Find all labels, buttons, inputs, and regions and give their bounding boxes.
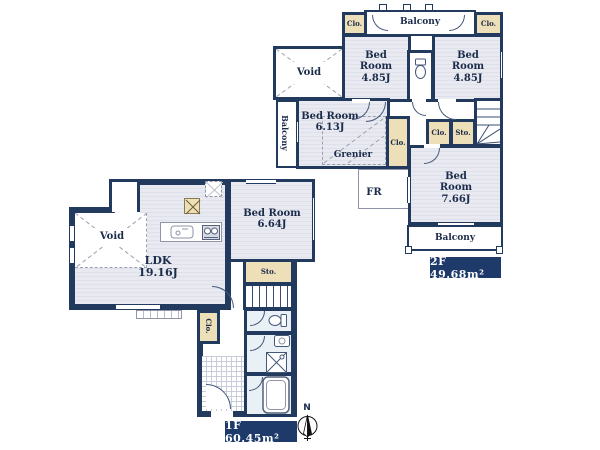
storage-label: Sto. — [450, 119, 476, 147]
floor2-area-label: 2F 49.68m² — [430, 257, 501, 278]
vanity-sink-icon — [274, 335, 290, 347]
door-gap — [296, 122, 299, 142]
stove-symbol-icon — [184, 198, 200, 214]
balcony-bottom-label: Balcony — [407, 228, 503, 248]
ldk-entry-nook — [109, 179, 140, 212]
closet-label: Clo. — [426, 119, 452, 147]
bedroom-1f-label: Bed Room6.64J — [243, 196, 301, 242]
bathtub-icon — [262, 376, 290, 414]
door-gap — [407, 177, 411, 203]
bedroom-2f-w-label: Bed Room6.13J — [300, 102, 360, 142]
void-2f-label: Void — [283, 62, 335, 84]
ldk-label: LDK19.16J — [126, 252, 190, 282]
refrigerator-space-icon — [205, 181, 222, 197]
deck-step — [136, 310, 182, 319]
window — [312, 198, 315, 240]
bedroom-2f-ne-label: Bed Room4.85J — [440, 44, 496, 90]
closet-label: Clo. — [386, 116, 410, 169]
stairs-1f — [243, 283, 294, 310]
door-arc — [438, 102, 456, 120]
closet-label: Clo. — [342, 12, 367, 36]
door-arc — [412, 102, 426, 116]
grenier-label: Grenier — [322, 148, 384, 162]
balcony-rail-post — [496, 246, 503, 254]
floor1-area-label: 1F 60.45m² — [225, 421, 297, 442]
window — [246, 179, 276, 184]
washer-icon — [266, 352, 287, 373]
entrance-door-gap — [210, 411, 234, 417]
toilet-icon — [413, 58, 428, 80]
closet-label: Clo. — [202, 308, 214, 344]
compass-north-label: N — [298, 402, 316, 414]
closet-label: Clo. — [474, 12, 503, 36]
kitchen-sink-icon — [170, 225, 194, 239]
bedroom-2f-se-label: Bed Room7.66J — [428, 165, 484, 211]
stairs-2f-treads — [477, 101, 500, 144]
storage-label: Sto. — [243, 259, 294, 285]
fr-label: FR — [360, 185, 388, 201]
bedroom-2f-nw-label: Bed Room4.85J — [348, 44, 404, 90]
window — [500, 52, 503, 78]
balcony-rail-post — [405, 246, 412, 254]
floor-plan-canvas: Balcony Clo. Clo. Bed Room4.85J Bed Room… — [0, 0, 600, 450]
toilet-icon — [268, 312, 288, 329]
balcony-left-label: Balcony — [276, 102, 294, 164]
cooktop-icon — [202, 225, 220, 240]
void-1f-label: Void — [90, 228, 134, 246]
compass-icon — [296, 414, 319, 441]
